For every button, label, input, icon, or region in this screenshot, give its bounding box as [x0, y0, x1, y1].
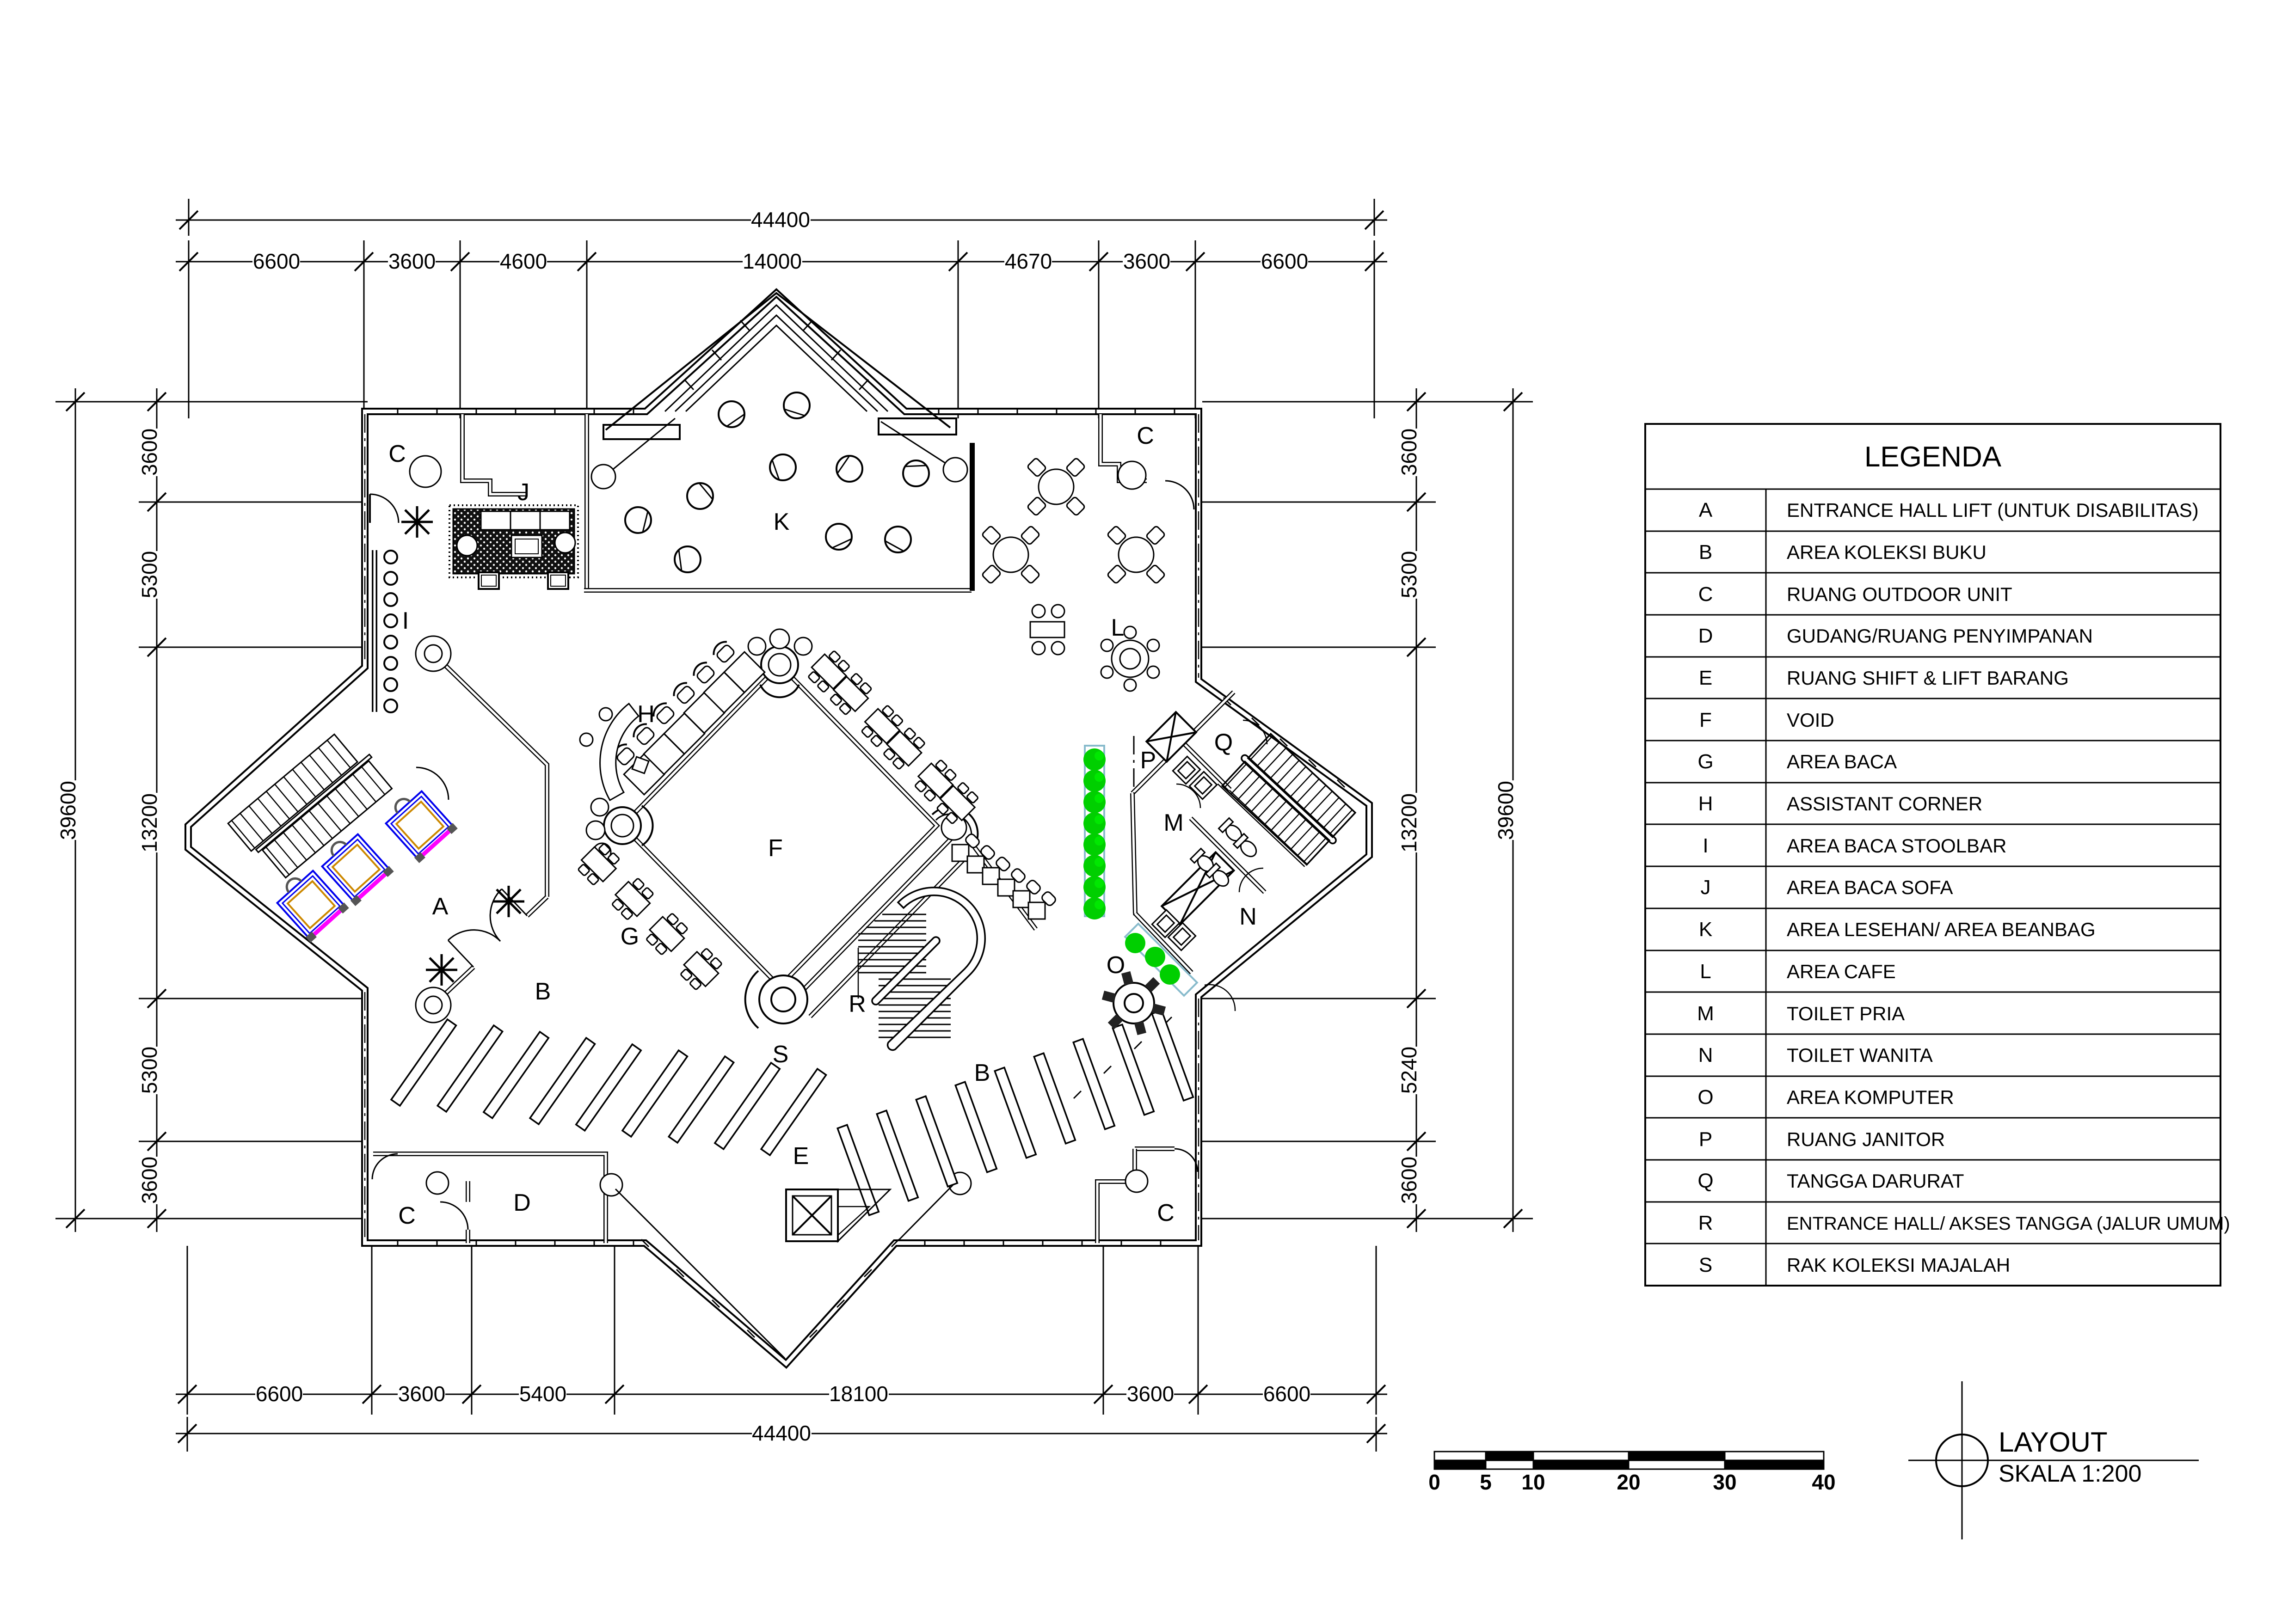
svg-text:K: K	[774, 509, 790, 535]
svg-text:P: P	[1140, 747, 1156, 774]
svg-text:LEGENDA: LEGENDA	[1864, 441, 2002, 473]
svg-text:3600: 3600	[1127, 1382, 1174, 1406]
svg-text:6600: 6600	[253, 249, 300, 273]
svg-text:H: H	[637, 701, 655, 728]
svg-text:A: A	[1699, 499, 1713, 521]
svg-text:5400: 5400	[519, 1382, 566, 1406]
svg-text:6600: 6600	[256, 1382, 303, 1406]
svg-text:3600: 3600	[388, 249, 436, 273]
svg-text:AREA CAFE: AREA CAFE	[1787, 961, 1896, 982]
svg-text:F: F	[1699, 709, 1712, 731]
svg-text:40: 40	[1812, 1470, 1835, 1494]
svg-text:LAYOUT: LAYOUT	[1999, 1427, 2108, 1458]
svg-text:J: J	[517, 479, 529, 506]
svg-text:AREA BACA: AREA BACA	[1787, 751, 1897, 772]
svg-text:3600: 3600	[1123, 249, 1170, 273]
svg-text:44400: 44400	[752, 1421, 811, 1445]
svg-text:5300: 5300	[1397, 551, 1421, 598]
svg-text:R: R	[1698, 1212, 1713, 1234]
svg-text:3600: 3600	[1397, 1157, 1421, 1204]
svg-text:D: D	[513, 1189, 531, 1216]
svg-text:13200: 13200	[137, 793, 161, 852]
svg-text:I: I	[402, 607, 409, 634]
svg-text:B: B	[535, 978, 551, 1005]
svg-text:P: P	[1699, 1128, 1712, 1151]
svg-text:ENTRANCE HALL LIFT (UNTUK DISA: ENTRANCE HALL LIFT (UNTUK DISABILITAS)	[1787, 499, 2199, 521]
svg-text:5300: 5300	[137, 1047, 161, 1094]
svg-text:B: B	[1699, 541, 1712, 564]
svg-text:5: 5	[1480, 1470, 1492, 1494]
svg-text:H: H	[1698, 792, 1713, 815]
svg-text:R: R	[849, 991, 866, 1017]
svg-text:D: D	[1698, 625, 1713, 647]
svg-text:TOILET PRIA: TOILET PRIA	[1787, 1003, 1905, 1024]
svg-text:G: G	[621, 923, 639, 950]
svg-text:4670: 4670	[1005, 249, 1052, 273]
svg-text:10: 10	[1521, 1470, 1545, 1494]
svg-text:B: B	[974, 1060, 990, 1086]
svg-text:AREA BACA SOFA: AREA BACA SOFA	[1787, 876, 1953, 898]
svg-text:AREA KOLEKSI BUKU: AREA KOLEKSI BUKU	[1787, 541, 1986, 563]
svg-text:RAK KOLEKSI MAJALAH: RAK KOLEKSI MAJALAH	[1787, 1254, 2010, 1276]
svg-text:20: 20	[1617, 1470, 1640, 1494]
svg-text:G: G	[1697, 750, 1713, 773]
svg-text:39600: 39600	[1494, 781, 1518, 840]
svg-text:RUANG JANITOR: RUANG JANITOR	[1787, 1128, 1945, 1150]
svg-text:VOID: VOID	[1787, 709, 1834, 731]
svg-text:5300: 5300	[137, 551, 161, 598]
svg-text:39600: 39600	[56, 781, 80, 840]
svg-text:ASSISTANT CORNER: ASSISTANT CORNER	[1787, 793, 1982, 815]
svg-text:GUDANG/RUANG PENYIMPANAN: GUDANG/RUANG PENYIMPANAN	[1787, 625, 2093, 647]
svg-text:O: O	[1107, 952, 1125, 979]
svg-text:C: C	[1157, 1200, 1175, 1226]
svg-text:5240: 5240	[1397, 1047, 1421, 1094]
svg-text:SKALA 1:200: SKALA 1:200	[1999, 1460, 2141, 1487]
svg-text:4600: 4600	[500, 249, 547, 273]
svg-text:N: N	[1698, 1044, 1713, 1066]
svg-text:C: C	[388, 441, 406, 467]
svg-text:3600: 3600	[1397, 429, 1421, 476]
svg-text:TANGGA DARURAT: TANGGA DARURAT	[1787, 1170, 1964, 1192]
svg-text:N: N	[1239, 903, 1257, 930]
svg-text:C: C	[398, 1202, 416, 1229]
svg-text:6600: 6600	[1263, 1382, 1310, 1406]
svg-text:30: 30	[1713, 1470, 1736, 1494]
svg-text:M: M	[1163, 809, 1183, 836]
svg-text:L: L	[1700, 960, 1711, 983]
svg-text:K: K	[1699, 918, 1712, 941]
svg-text:3600: 3600	[137, 1157, 161, 1204]
svg-text:E: E	[1699, 667, 1712, 689]
svg-text:L: L	[1111, 614, 1125, 641]
svg-text:6600: 6600	[1261, 249, 1308, 273]
svg-text:13200: 13200	[1397, 793, 1421, 852]
svg-text:J: J	[1701, 876, 1711, 899]
svg-text:44400: 44400	[751, 208, 810, 232]
svg-text:RUANG SHIFT & LIFT BARANG: RUANG SHIFT & LIFT BARANG	[1787, 667, 2069, 689]
svg-text:ENTRANCE HALL/ AKSES TANGGA (J: ENTRANCE HALL/ AKSES TANGGA (JALUR UMUM)	[1787, 1213, 2230, 1234]
svg-text:S: S	[773, 1041, 789, 1068]
svg-text:C: C	[1137, 423, 1154, 449]
svg-text:I: I	[1703, 834, 1708, 857]
svg-text:18100: 18100	[829, 1382, 888, 1406]
svg-text:0: 0	[1428, 1470, 1440, 1494]
svg-text:E: E	[793, 1143, 809, 1170]
svg-text:AREA BACA STOOLBAR: AREA BACA STOOLBAR	[1787, 835, 2006, 857]
svg-text:C: C	[1698, 583, 1713, 606]
svg-text:3600: 3600	[137, 429, 161, 476]
svg-text:M: M	[1697, 1002, 1714, 1025]
svg-text:14000: 14000	[743, 249, 802, 273]
svg-text:A: A	[432, 893, 449, 920]
svg-text:F: F	[768, 835, 783, 862]
svg-text:3600: 3600	[398, 1382, 445, 1406]
svg-text:Q: Q	[1214, 729, 1233, 756]
svg-text:RUANG OUTDOOR UNIT: RUANG OUTDOOR UNIT	[1787, 583, 2012, 605]
svg-text:Q: Q	[1697, 1170, 1713, 1192]
svg-text:O: O	[1697, 1086, 1713, 1109]
svg-text:AREA LESEHAN/ AREA BEANBAG: AREA LESEHAN/ AREA BEANBAG	[1787, 919, 2096, 940]
svg-text:S: S	[1699, 1254, 1712, 1276]
svg-text:AREA KOMPUTER: AREA KOMPUTER	[1787, 1086, 1954, 1108]
svg-text:TOILET WANITA: TOILET WANITA	[1787, 1044, 1933, 1066]
